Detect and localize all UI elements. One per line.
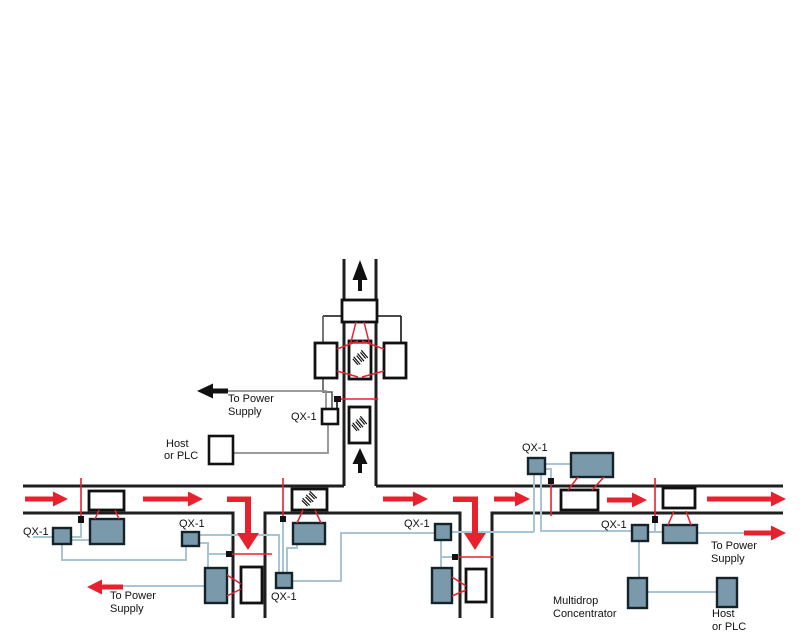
to-power-supply-label-left-line1: To Power — [110, 590, 156, 602]
qx1-device-3 — [182, 532, 199, 546]
multidrop-concentrator-label-line2: Concentrator — [553, 608, 617, 620]
sensor-icon — [226, 551, 232, 557]
sensor-icon — [548, 478, 554, 484]
right-arrow-icon — [143, 492, 203, 507]
scan-line — [568, 477, 604, 490]
scanner-5 — [571, 453, 613, 477]
sensor-icon — [280, 516, 286, 522]
qx1-label-3: QX-1 — [179, 518, 205, 530]
blue-boxes — [53, 453, 737, 608]
host-or-plc-label-top-line1: Host — [166, 438, 189, 450]
host-plc-box-top — [209, 436, 233, 464]
host-or-plc-label-bottom-line2: or PLC — [712, 621, 746, 633]
scanner-3 — [293, 523, 325, 544]
right-arrow-icon — [383, 492, 428, 507]
sensor-a-cable — [71, 523, 81, 537]
qx1-label-7: QX-1 — [601, 519, 627, 531]
qx1-device-5 — [435, 524, 451, 540]
to-power-supply-label-top-line1: To Power — [228, 393, 274, 405]
side-scanner-left — [315, 343, 337, 378]
scanner-4 — [432, 568, 452, 603]
conveyor-lines — [23, 259, 783, 618]
up-arrow-icon — [353, 260, 368, 291]
sensor-icon — [78, 516, 84, 523]
left-arrow-icon — [197, 384, 228, 399]
to-power-supply-label-right-line1: To Power — [711, 540, 757, 552]
qx5-sensor-scanner-cable — [441, 540, 452, 568]
qx1-label-4: QX-1 — [271, 591, 297, 603]
scanner-6 — [663, 525, 697, 543]
qx1-device-4 — [276, 573, 292, 588]
conveyor-network-diagram — [0, 0, 810, 641]
host-cable-top — [233, 424, 328, 453]
right-arrow-icon — [744, 526, 786, 541]
up-arrow-icon — [353, 448, 368, 473]
to-power-supply-label-left-line2: Supply — [110, 603, 144, 615]
to-power-supply-label-top-line2: Supply — [228, 406, 262, 418]
host-plc-box-bottom — [717, 578, 737, 607]
side-scanner-right — [384, 343, 406, 378]
diagram-canvas: QX-1 QX-1 QX-1 QX-1 QX-1 QX-1 QX-1 To Po… — [0, 0, 810, 641]
qx1-label-6: QX-1 — [522, 442, 548, 454]
package-box — [466, 569, 486, 602]
qx1-device-1 — [322, 409, 338, 424]
chain-qx2-qx3 — [62, 544, 186, 560]
qx1-label-1: QX-1 — [291, 411, 317, 423]
package-box — [89, 491, 124, 510]
package-box — [561, 490, 598, 510]
package-box — [241, 567, 262, 603]
corner-down-arrow-icon — [453, 497, 486, 551]
scanner-1 — [90, 519, 124, 544]
right-arrow-icon — [607, 493, 647, 508]
right-arrow-icon — [25, 492, 68, 507]
right-arrow-icon — [707, 492, 786, 507]
multidrop-concentrator-label-line1: Multidrop — [553, 595, 598, 607]
qx1-device-7 — [632, 525, 648, 541]
qx1-device-6 — [528, 458, 545, 474]
right-arrow-icon — [494, 492, 530, 507]
host-or-plc-label-top-line2: or PLC — [164, 450, 198, 462]
qx1-device-2 — [53, 528, 71, 544]
sensor-icon — [452, 554, 458, 560]
multidrop-concentrator-box — [628, 578, 647, 608]
qx4-scanner-cable — [287, 544, 297, 573]
top-read-scanner — [342, 300, 377, 322]
qx1-label-2: QX-1 — [23, 526, 49, 538]
qx1-label-5: QX-1 — [404, 518, 430, 530]
qx3-sensor-scanner-cable — [199, 543, 226, 568]
sensor-icon — [334, 396, 341, 402]
sensor-icon — [652, 516, 658, 523]
scanner-2 — [205, 568, 227, 603]
package-box — [292, 489, 327, 510]
host-or-plc-label-bottom-line1: Host — [712, 608, 735, 620]
package-box — [663, 488, 695, 508]
to-power-supply-label-right-line2: Supply — [711, 553, 745, 565]
